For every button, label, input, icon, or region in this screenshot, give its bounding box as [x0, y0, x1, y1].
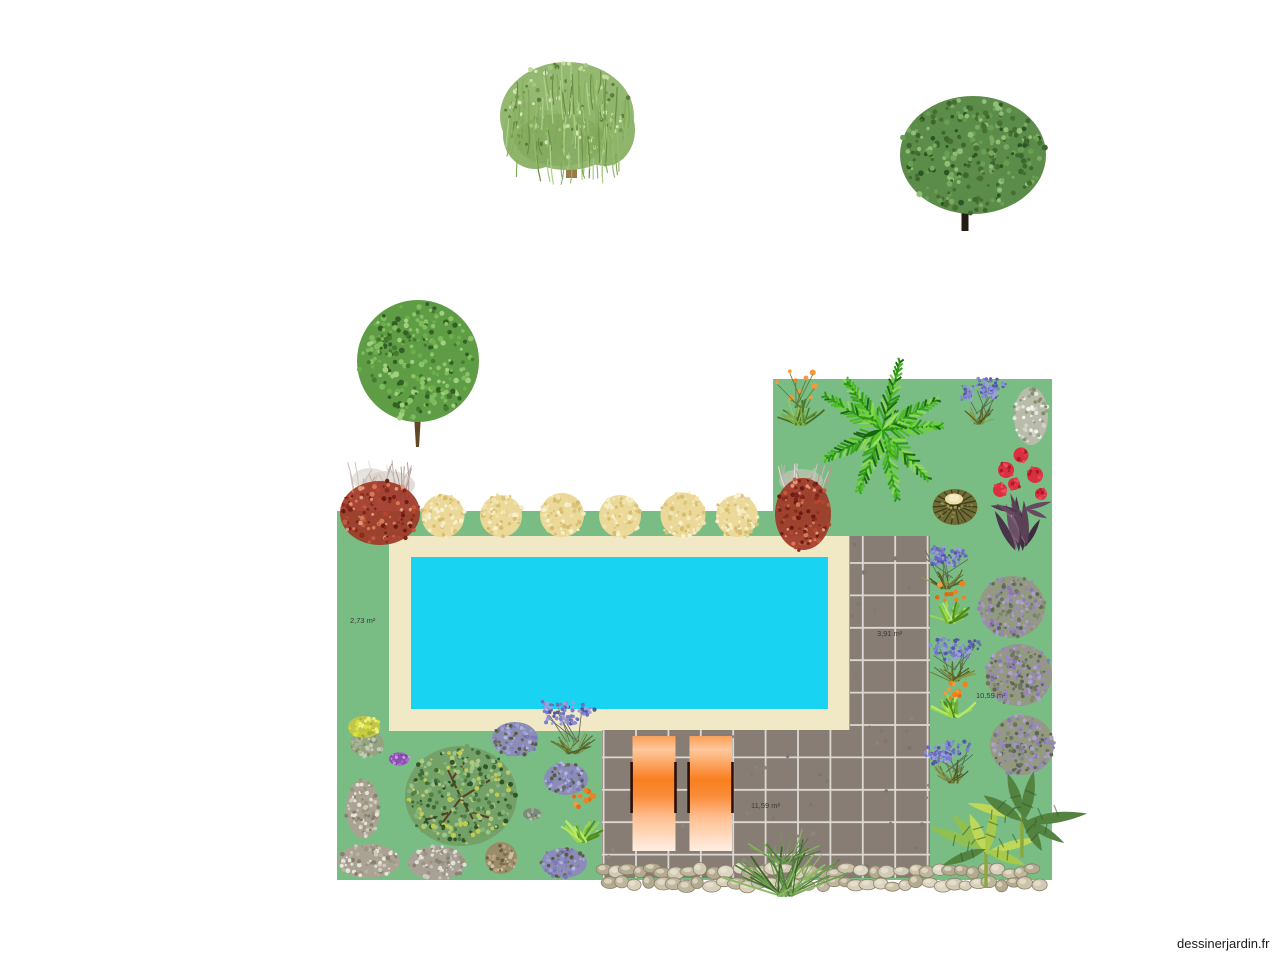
svg-text:2,73 m²: 2,73 m² — [350, 616, 376, 625]
svg-text:dessinerjardin.fr: dessinerjardin.fr — [1177, 936, 1270, 951]
svg-text:3,91 m²: 3,91 m² — [877, 629, 903, 638]
svg-text:11,59 m²: 11,59 m² — [751, 801, 781, 810]
svg-text:10,59 m²: 10,59 m² — [976, 691, 1006, 700]
